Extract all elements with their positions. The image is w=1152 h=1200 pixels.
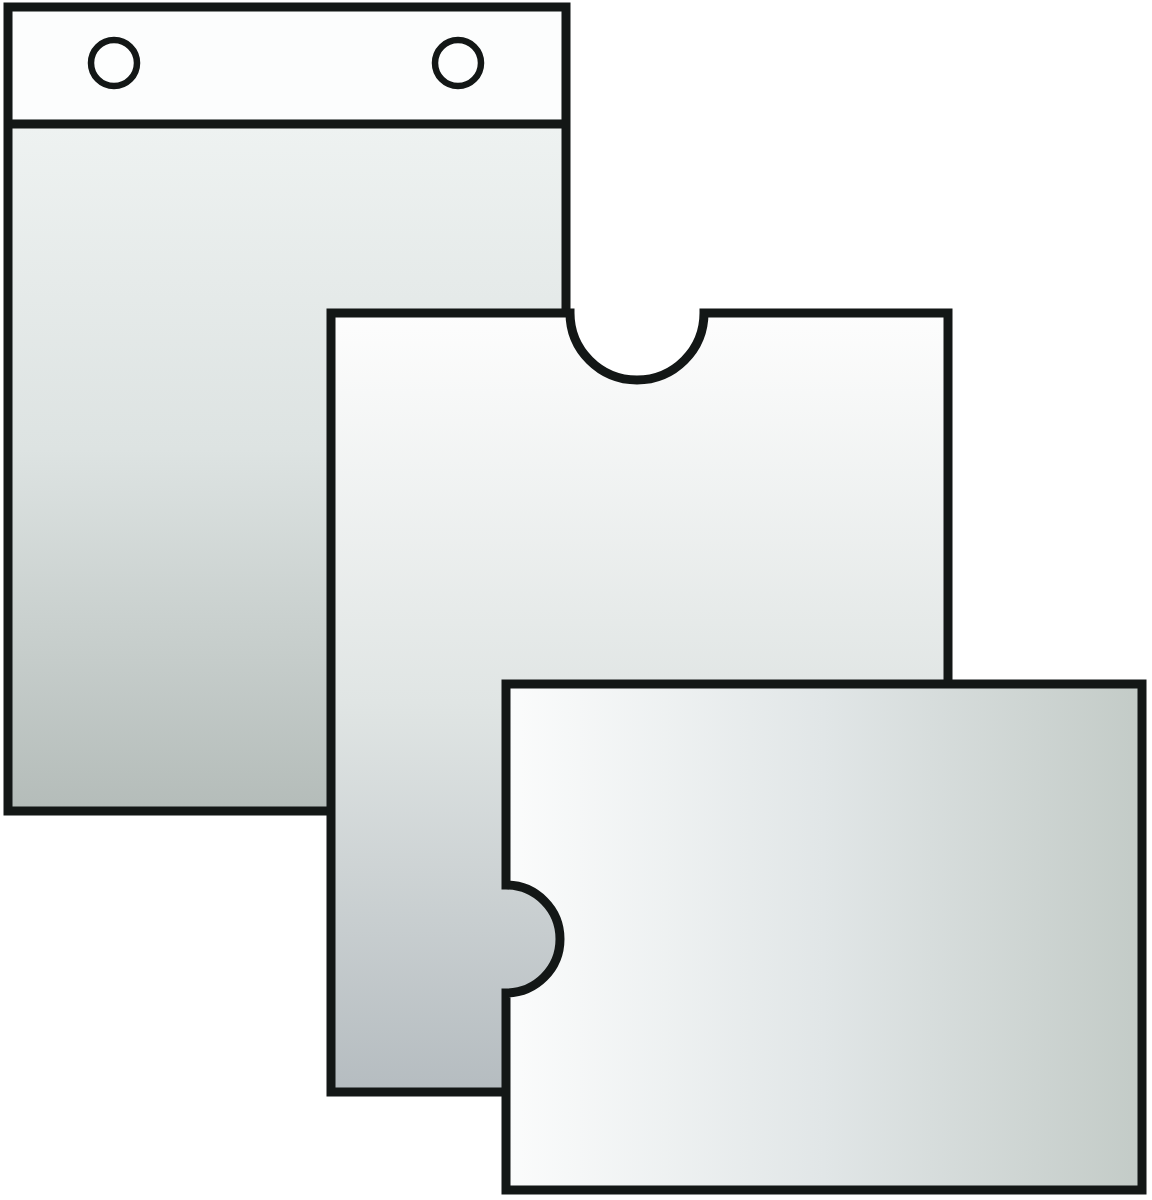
punch-hole-left (91, 40, 137, 86)
illustration-canvas (0, 0, 1152, 1200)
pocket-sleeves-illustration (0, 0, 1152, 1200)
punch-hole-right (435, 40, 481, 86)
landscape-pocket-shape (506, 684, 1142, 1190)
